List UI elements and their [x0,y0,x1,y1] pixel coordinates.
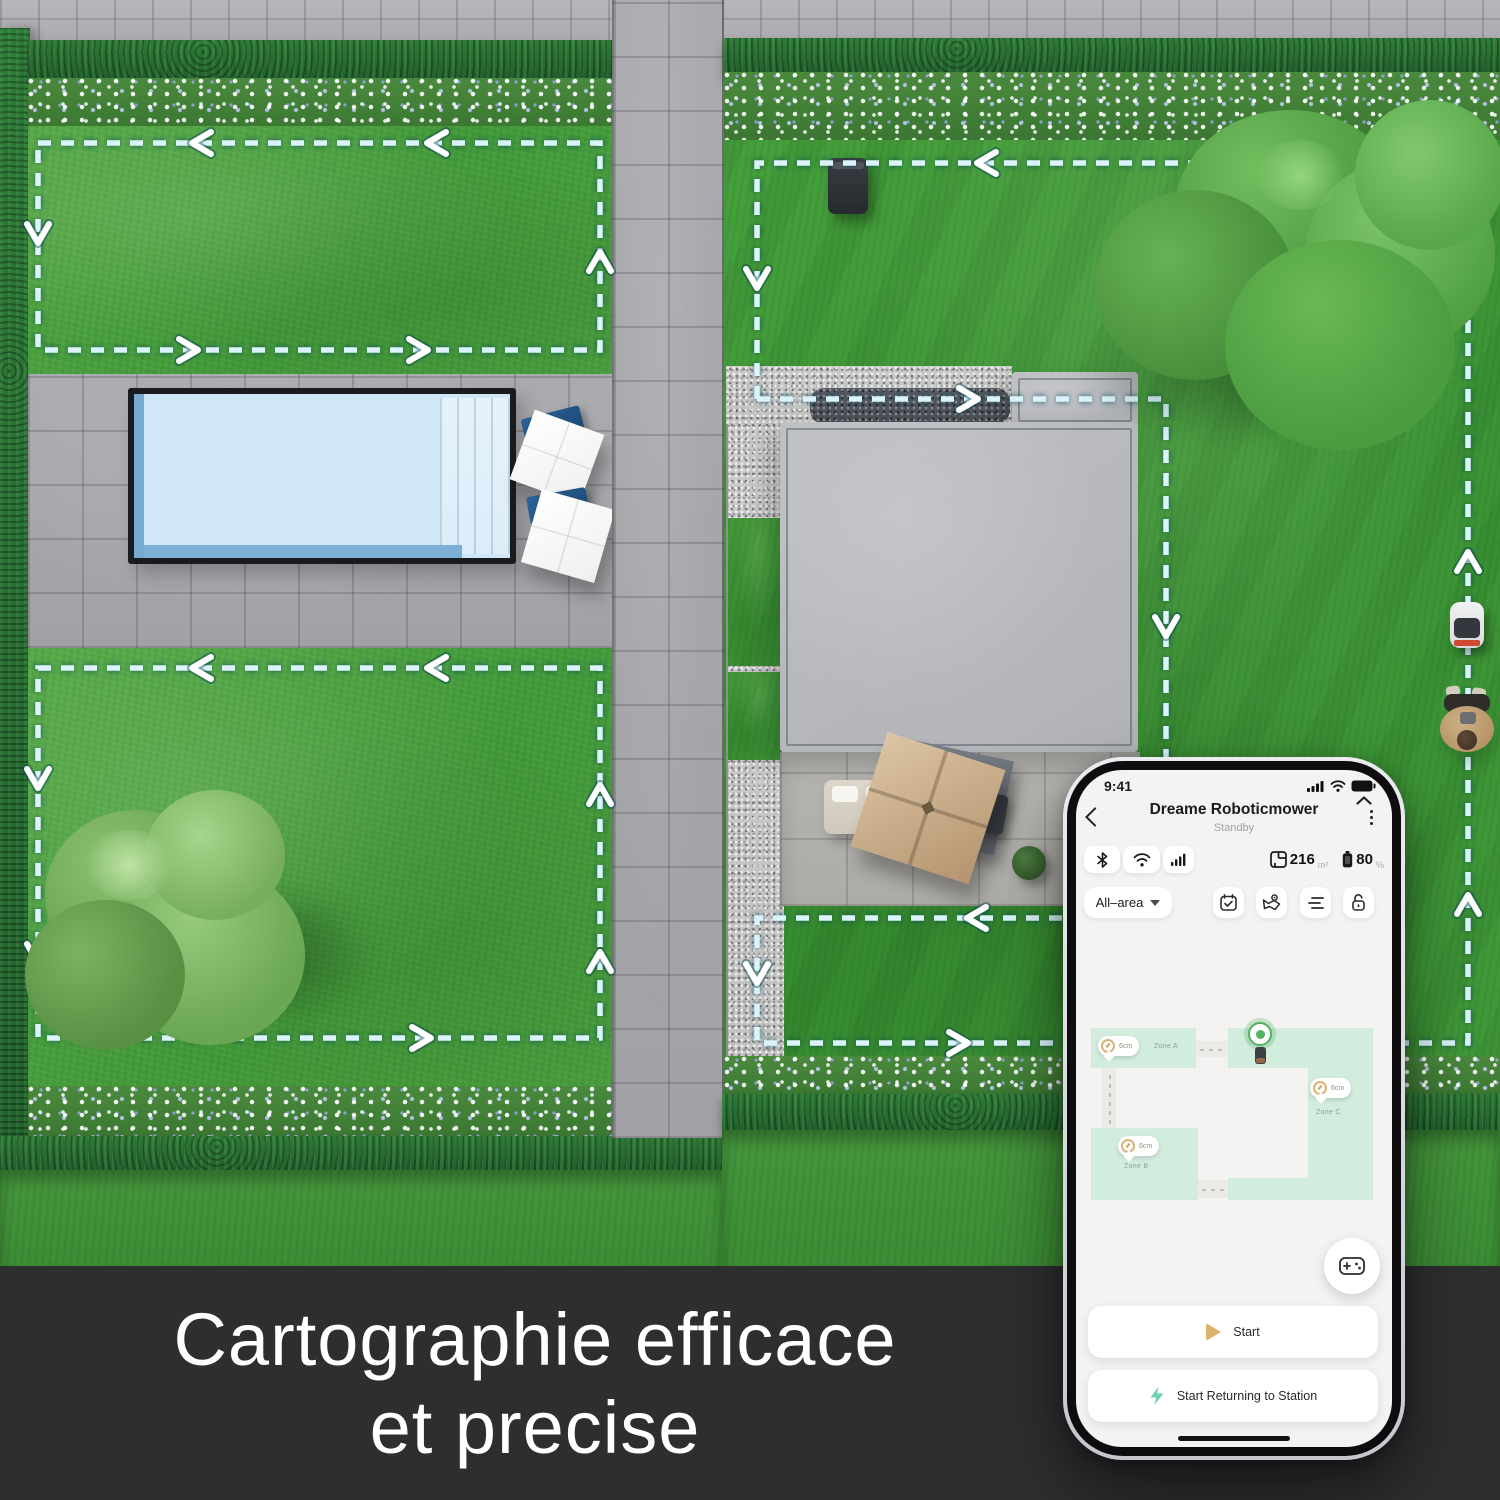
device-battery-icon [1342,851,1353,868]
gamepad-icon [1339,1257,1365,1275]
zone-c-badge: 6cm [1310,1078,1351,1098]
wifi-chip-icon [1133,853,1151,867]
caption-line-1: Cartographie efficace [0,1296,1070,1384]
caption-line-2: et precise [0,1384,1070,1472]
remote-control-button[interactable] [1324,1238,1380,1294]
chevron-down-icon [1150,900,1160,906]
device-status: Standby [1116,822,1352,834]
area-selector[interactable]: All–area [1084,887,1172,918]
cut-height-dial-icon [1101,1039,1115,1053]
return-to-station-button[interactable]: Start Returning to Station [1088,1370,1378,1422]
battery-value: 80 [1356,851,1373,868]
area-selector-label: All–area [1096,895,1144,910]
zone-b-badge: 6cm [1118,1136,1159,1156]
phone-bezel: 9:41 Dreame Roboticmower Standby [1067,761,1401,1456]
person-head [1457,730,1477,750]
status-icons [1307,780,1376,792]
corridor-a-c [1196,1041,1228,1057]
zone-a-badge: 6cm [1098,1036,1139,1056]
lightning-icon [1149,1386,1165,1406]
map-robot-icon [1255,1047,1266,1064]
home-indicator[interactable] [1178,1436,1290,1441]
bluetooth-chip [1084,846,1120,873]
cellular-icon [1307,780,1325,792]
device-header: Dreame Roboticmower Standby [1116,801,1352,834]
unlock-icon [1351,894,1366,911]
lock-button[interactable] [1343,887,1374,918]
phone-screen: 9:41 Dreame Roboticmower Standby [1076,770,1392,1447]
zone-c-label: Zone C [1316,1109,1341,1116]
phone: 9:41 Dreame Roboticmower Standby [1063,757,1405,1460]
corridor-a-b [1102,1068,1116,1128]
status-time: 9:41 [1104,778,1132,794]
map-pin-icon [1262,894,1281,911]
cut-height-dial-icon [1121,1139,1135,1153]
person [1430,686,1500,772]
start-button-label: Start [1233,1325,1259,1339]
bluetooth-icon [1097,852,1108,868]
start-button[interactable]: Start [1088,1306,1378,1358]
signal-chip [1163,846,1194,873]
wifi-icon [1330,780,1346,792]
device-title: Dreame Roboticmower [1116,801,1352,819]
map-station-icon [1248,1022,1272,1046]
play-icon [1206,1323,1221,1341]
signal-icon [1171,853,1186,866]
area-unit: m² [1318,860,1329,873]
zone-b-label: Zone B [1124,1163,1148,1170]
more-menu-button[interactable] [1370,810,1373,813]
battery-unit: % [1376,860,1384,873]
robot-mower [1450,602,1484,648]
cut-height-dial-icon [1313,1081,1327,1095]
settings-button[interactable] [1300,887,1331,918]
stats-row: 216 m² 80 % [1270,846,1384,873]
area-value: 216 [1290,851,1315,868]
area-icon [1270,851,1287,868]
tree-top-right [1055,100,1500,480]
zone-c-bottom[interactable] [1228,1178,1373,1200]
battery-icon [1351,780,1376,792]
zone-a-label: Zone A [1154,1043,1178,1050]
corridor-b-c [1198,1180,1228,1198]
calendar-check-icon [1220,894,1237,911]
map-button[interactable] [1256,887,1287,918]
scene: Cartographie efficace et precise 9:41 Dr… [0,0,1500,1500]
return-button-label: Start Returning to Station [1177,1389,1317,1403]
back-button[interactable] [1085,807,1105,827]
collapse-chevron-icon[interactable] [1356,796,1372,805]
schedule-button[interactable] [1213,887,1244,918]
tree-bottom-left [25,770,325,1080]
caption-text: Cartographie efficace et precise [0,1296,1070,1472]
sliders-icon [1308,896,1324,910]
wifi-chip [1123,846,1160,873]
person-remote [1460,712,1476,724]
